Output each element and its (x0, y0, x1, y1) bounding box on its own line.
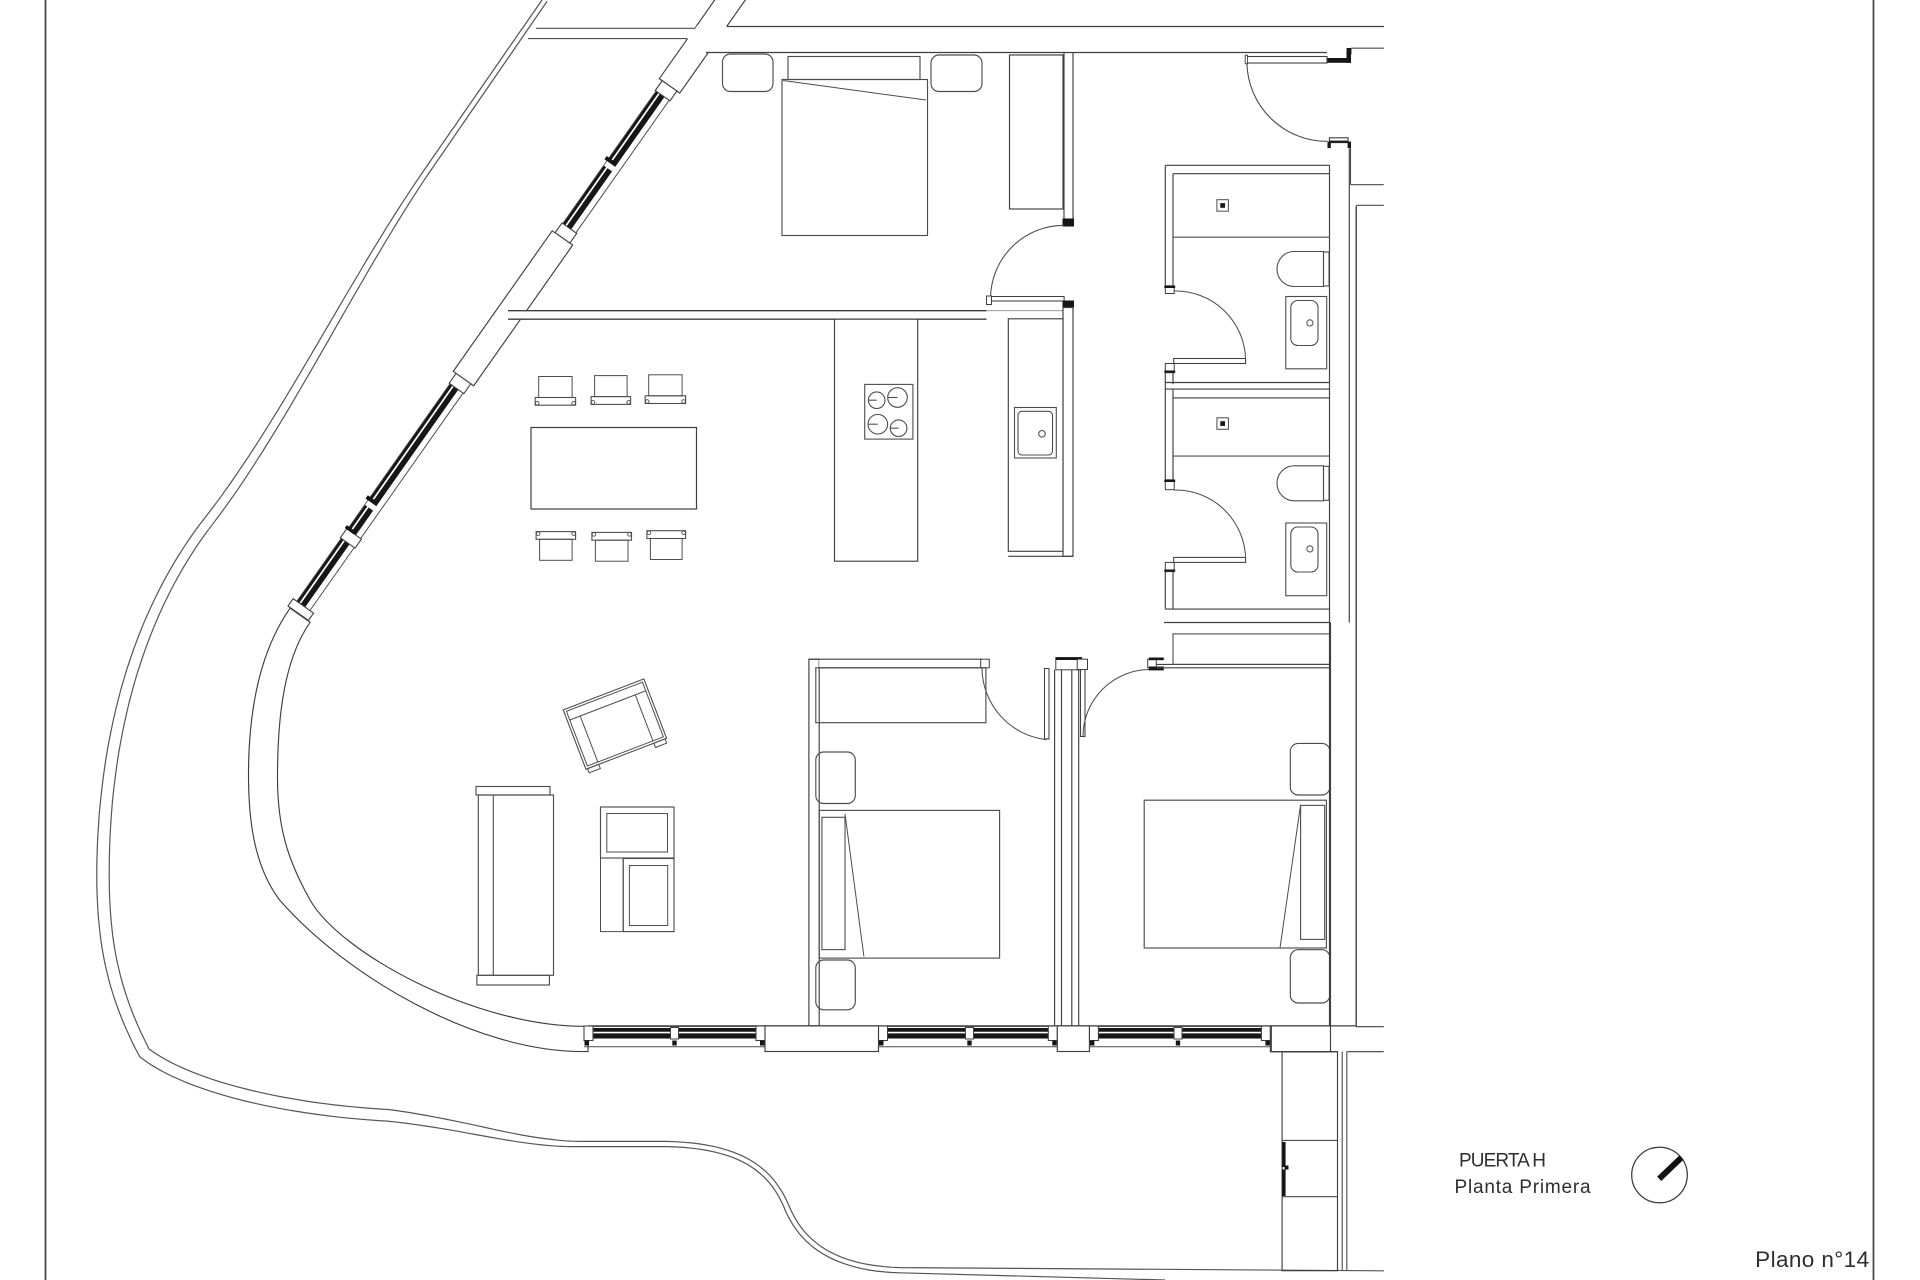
svg-text:Plano n°14: Plano n°14 (1755, 1247, 1869, 1272)
svg-text:Planta Primera: Planta Primera (1455, 1177, 1592, 1198)
svg-text:PUERTA H: PUERTA H (1459, 1151, 1545, 1172)
